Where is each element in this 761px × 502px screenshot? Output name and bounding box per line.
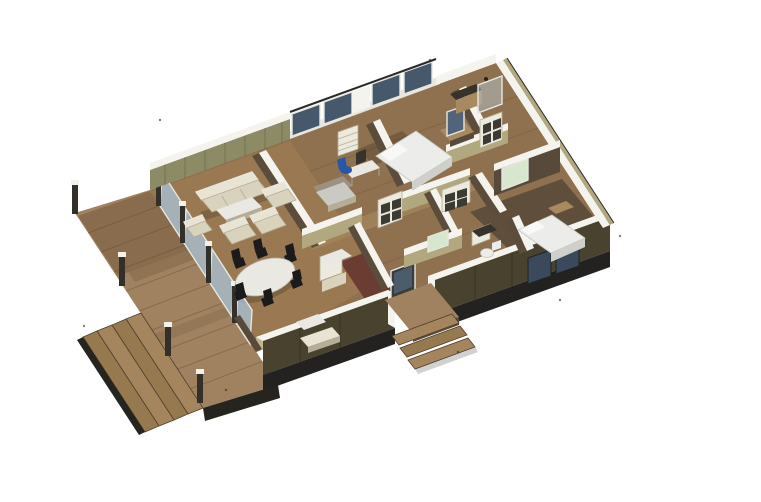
isometric-house-rendering — [0, 0, 761, 502]
render-speck — [331, 351, 333, 353]
render-speck — [457, 351, 459, 353]
render-speck — [559, 299, 561, 301]
render-speck — [159, 119, 161, 121]
floorplan-render-canvas — [0, 0, 761, 502]
deck-post — [72, 184, 78, 214]
glass-wall-post — [206, 245, 211, 283]
deck-post-cap — [164, 322, 172, 327]
deck-post — [119, 256, 125, 286]
wall-vent — [484, 77, 488, 81]
deck-post-cap — [71, 180, 79, 185]
deck-post — [197, 373, 203, 403]
render-speck — [83, 325, 85, 327]
glass-wall-post-cap — [179, 201, 186, 206]
toilet-bowl — [481, 249, 494, 258]
render-speck — [225, 389, 227, 391]
office-chair-seat — [340, 166, 352, 174]
glass-wall-post-cap — [205, 241, 212, 246]
deck-post — [165, 326, 171, 356]
render-speck — [429, 59, 431, 61]
deck-post-cap — [196, 369, 204, 374]
render-speck — [619, 235, 621, 237]
deck-post-cap — [118, 252, 126, 257]
